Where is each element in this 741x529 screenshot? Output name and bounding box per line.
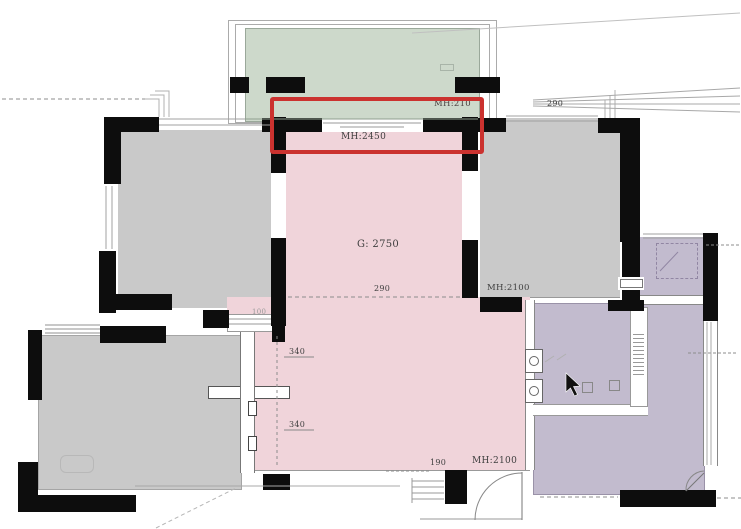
door-hinge-box [525, 379, 543, 403]
wall-segment [272, 290, 285, 342]
wall-segment [263, 474, 290, 490]
wall-segment [266, 77, 305, 93]
wall-segment [28, 330, 42, 400]
bottom-left-fixture [60, 455, 94, 473]
hinge-ring-icon [529, 356, 539, 366]
dim-100-label: 100 [252, 309, 266, 316]
wall-segment [117, 117, 159, 132]
shaft-fixture [630, 307, 648, 407]
door-height-right-label: MH:2100 [487, 284, 530, 293]
wall-segment [100, 326, 166, 343]
wall-segment [622, 240, 640, 277]
kitchen-utility-area [533, 303, 705, 495]
beam-190-label: 190 [430, 459, 446, 467]
wall-segment [203, 310, 229, 328]
hinge-ring-icon [529, 386, 539, 396]
window-left-wall [102, 184, 118, 251]
ceiling-height-label: G: 2750 [357, 240, 399, 250]
wall-segment [620, 490, 716, 507]
window-right-strip [703, 321, 718, 466]
kitchen-outlet-square [582, 382, 593, 393]
floor-plan: MH:210 MH:2450 G: 2750 290 290 MH:2100 3… [0, 0, 741, 529]
entry-door-arc [475, 473, 522, 520]
bathroom-door-leaf [620, 279, 643, 288]
beam-290-label: 290 [374, 285, 390, 293]
wall-segment [703, 233, 718, 321]
bedroom-top-left [118, 130, 271, 308]
door-hinge-mark [248, 401, 257, 416]
wall-segment [480, 297, 522, 312]
dim-290-top-label: 290 [547, 100, 563, 108]
door-height-entry-label: MH:2100 [472, 457, 517, 466]
bedroom-top-center [286, 131, 462, 298]
red-highlight-box [270, 97, 484, 154]
bedroom-top-right [480, 118, 620, 298]
door-hinge-box [525, 349, 543, 373]
door-hinge-mark [248, 436, 257, 451]
beam-340-upper-label: 340 [289, 348, 305, 356]
bathroom-fixture [656, 243, 698, 279]
wall-segment [608, 300, 644, 311]
door-threshold-top-left-room [227, 314, 275, 332]
wall-segment [445, 470, 467, 504]
ladder-hatch [633, 332, 644, 378]
wall-segment [99, 251, 116, 313]
kitchen-outlet-square [609, 380, 620, 391]
wall-segment [455, 77, 500, 93]
wall-segment [230, 77, 249, 93]
wall-segment [18, 495, 136, 512]
balcony-mark [440, 64, 454, 71]
beam-340-lower-label: 340 [289, 421, 305, 429]
wall-segment [620, 130, 640, 242]
wall-segment [115, 294, 172, 310]
wall-segment [462, 240, 478, 298]
